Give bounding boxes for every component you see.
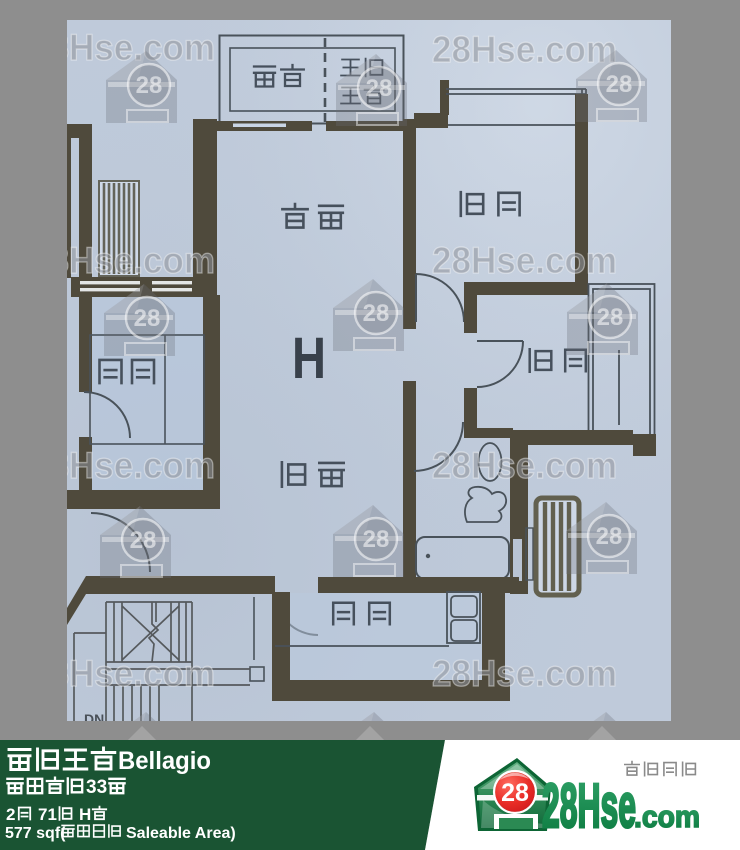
svg-text:H: H [292,326,326,391]
svg-text:71: 71 [38,805,57,824]
svg-text:28: 28 [366,75,393,102]
svg-text:2: 2 [6,805,15,824]
svg-text:28: 28 [134,305,161,332]
svg-text:H: H [79,805,91,824]
svg-text:28: 28 [136,72,163,99]
svg-text:33: 33 [86,777,107,798]
svg-text:28Hse.com: 28Hse.com [432,445,617,486]
svg-text:28: 28 [130,527,157,554]
svg-text:28Hse: 28Hse [542,772,636,841]
svg-text:Saleable Area): Saleable Area) [126,825,236,842]
svg-text:28: 28 [363,300,390,327]
svg-text:28: 28 [597,304,624,331]
svg-text:28: 28 [596,523,623,550]
svg-text:28: 28 [606,71,633,98]
svg-text:Bellagio: Bellagio [118,747,211,775]
svg-text:577 sqf(: 577 sqf( [5,825,66,842]
svg-text:28Hse.com: 28Hse.com [432,653,617,694]
svg-text:28Hse.com: 28Hse.com [432,29,617,70]
svg-text:28Hse.com: 28Hse.com [432,240,617,281]
svg-text:28: 28 [363,526,390,553]
svg-text:.com: .com [634,799,700,834]
svg-text:28: 28 [501,779,529,807]
